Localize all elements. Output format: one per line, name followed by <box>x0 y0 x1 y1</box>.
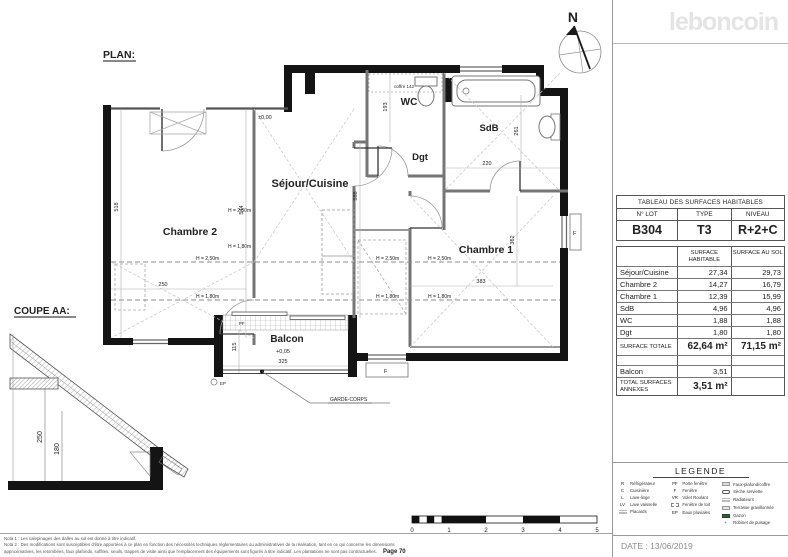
leboncoin-logo: leboncoin <box>613 0 788 44</box>
plan-title: PLAN: <box>103 49 136 61</box>
table-row: Chambre 1 12,39 15,99 <box>617 290 784 302</box>
floor-plan-drawing: PLAN: N <box>0 0 612 557</box>
window-f-label: F <box>573 231 577 237</box>
svg-text:193: 193 <box>383 102 389 111</box>
note-line: approximatives, les retombées, faux plaf… <box>4 549 377 554</box>
page-reference: Page 70 <box>383 549 406 555</box>
room-label-sejour: Séjour/Cuisine <box>271 178 348 190</box>
table-row: WC 1,88 1,88 <box>617 314 784 326</box>
room-label-balcon: Balcon <box>270 334 303 345</box>
spacer-row <box>617 355 784 365</box>
pf-label: PF <box>239 321 245 326</box>
svg-text:H = 1,80m: H = 1,80m <box>196 294 219 300</box>
table-row: Séjour/Cuisine 27,34 29,73 <box>617 266 784 278</box>
svg-text:261: 261 <box>514 126 520 135</box>
legend-item: CCuisinière <box>617 489 669 493</box>
svg-text:220: 220 <box>482 161 491 167</box>
svg-text:H = 2,50m: H = 2,50m <box>196 256 219 262</box>
legend-item: PFPorte fenêtre <box>669 482 720 486</box>
level-balcon: +0,05 <box>276 349 290 355</box>
svg-text:115: 115 <box>232 343 238 352</box>
svg-text:H = 1,80m: H = 1,80m <box>428 294 451 300</box>
legend-item: Fenêtre de toit <box>669 503 720 508</box>
table-row: Dgt 1,80 1,80 <box>617 326 784 338</box>
legend-item: EPEaux pluviales <box>669 511 720 515</box>
toilet <box>415 77 437 106</box>
svg-text:518: 518 <box>114 202 120 211</box>
level-entry: ±0,00 <box>258 115 272 121</box>
bathtub <box>452 76 540 106</box>
table-row: SdB 4,96 4,96 <box>617 302 784 314</box>
legend-title: LEGENDE <box>653 466 749 478</box>
svg-text:588: 588 <box>353 191 359 200</box>
kitchen-units <box>322 210 354 294</box>
legend-item: Placards <box>617 510 669 515</box>
scale-bar: 0 1 2 3 4 5 <box>410 516 599 534</box>
type-label: TYPE <box>677 209 730 221</box>
legend-item: Terrasse gravillonnée <box>720 506 786 511</box>
north-arrow-icon: N <box>559 9 601 73</box>
legend-item: RRéfrigérateur <box>617 482 669 486</box>
lot-type: T3 <box>677 221 730 240</box>
lot-niveau: R+2+C <box>731 221 784 240</box>
lot-label: N° LOT <box>617 209 677 221</box>
terrasse-symbol <box>722 506 730 510</box>
legend-item: Radiateurs <box>720 498 786 503</box>
seche-serviette-symbol <box>722 490 730 494</box>
gazon-symbol <box>722 514 730 518</box>
legend-item: FFenêtre <box>669 489 720 493</box>
room-label-chambre1: Chambre 1 <box>459 244 513 256</box>
table-title: TABLEAU DES SURFACES HABITABLES <box>617 196 784 209</box>
fenetre-toit-symbol <box>671 503 679 507</box>
ep-label: EP <box>220 381 226 386</box>
svg-text:250: 250 <box>158 282 167 288</box>
svg-text:180: 180 <box>54 443 61 455</box>
svg-text:H = 2,50m: H = 2,50m <box>376 256 399 262</box>
slope-lines <box>111 262 560 300</box>
col-header-habitable: SURFACE HABITABLE <box>677 247 730 266</box>
room-label-sdb: SdB <box>480 123 499 134</box>
svg-text:PLAN:: PLAN: <box>103 49 135 61</box>
date-label: DATE : 13/06/2019 <box>613 535 788 557</box>
robinet-symbol: + <box>720 521 731 525</box>
legend-item: Gazon <box>720 514 786 519</box>
legend-item: Faux-plafond/coffre <box>720 482 786 487</box>
plan-sheet: PLAN: N <box>0 0 788 557</box>
ceiling-projection-lines <box>111 73 560 347</box>
svg-text:N: N <box>568 9 578 25</box>
footer-notes: Nota 1 : Les calepinages des dalles au s… <box>0 533 612 557</box>
coupe-aa-section: COUPE AA: 250 180 <box>8 306 188 490</box>
room-labels: Séjour/Cuisine Chambre 2 Chambre 1 WC Sd… <box>163 97 513 345</box>
window-f-label: F <box>384 369 388 375</box>
svg-text:544: 544 <box>239 205 245 214</box>
faux-plafond-symbol <box>722 482 730 486</box>
legend-block: LEGENDE RRéfrigérateur CCuisinière LLave… <box>613 462 788 535</box>
svg-text:H = 1,80m: H = 1,80m <box>228 244 251 250</box>
legend-item: +Robinet de puisage <box>720 521 786 525</box>
legend-item: VRVolet Roulant <box>669 496 720 500</box>
room-label-wc: WC <box>401 97 418 108</box>
legend-item: LLave-linge <box>617 496 669 500</box>
svg-text:H = 1,80m: H = 1,80m <box>376 294 399 300</box>
svg-text:H = 2,50m: H = 2,50m <box>428 256 451 262</box>
svg-text:COUPE AA:: COUPE AA: <box>14 306 70 317</box>
svg-text:383: 383 <box>476 279 485 285</box>
title-block-sidebar: leboncoin TABLEAU DES SURFACES HABITABLE… <box>612 0 788 557</box>
sink <box>539 114 560 140</box>
surfaces-table: SURFACE HABITABLE SURFACE AU SOL Séjour/… <box>616 246 785 396</box>
garde-corps-label: GARDE-CORPS <box>330 397 368 403</box>
col-header-sol: SURFACE AU SOL <box>731 247 784 266</box>
svg-text:250: 250 <box>37 431 44 443</box>
note-line: Nota 2 : Des modifications sont suscepti… <box>4 542 608 548</box>
annexes-row: TOTAL SURFACES ANNEXES 3,51 m² <box>617 377 784 395</box>
niveau-label: NIVEAU <box>731 209 784 221</box>
lot-number: B304 <box>617 221 677 240</box>
placard-symbol <box>619 510 627 514</box>
surface-totale-row: SURFACE TOTALE 62,64 m² 71,15 m² <box>617 338 784 355</box>
partitions-light <box>354 230 560 347</box>
svg-text:coffre 142: coffre 142 <box>394 84 414 89</box>
lot-identity-table: TABLEAU DES SURFACES HABITABLES N° LOT T… <box>616 195 785 241</box>
radiateur-symbol <box>722 498 730 502</box>
room-label-chambre2: Chambre 2 <box>163 226 217 238</box>
legend-item: LVLave vaisselle <box>617 503 669 507</box>
table-row: Chambre 2 14,27 16,79 <box>617 278 784 290</box>
legend-item: Sèche serviette <box>720 490 786 495</box>
svg-text:325: 325 <box>278 359 287 365</box>
room-label-dgt: Dgt <box>412 152 429 163</box>
balcon-row: Balcon 3,51 <box>617 365 784 377</box>
